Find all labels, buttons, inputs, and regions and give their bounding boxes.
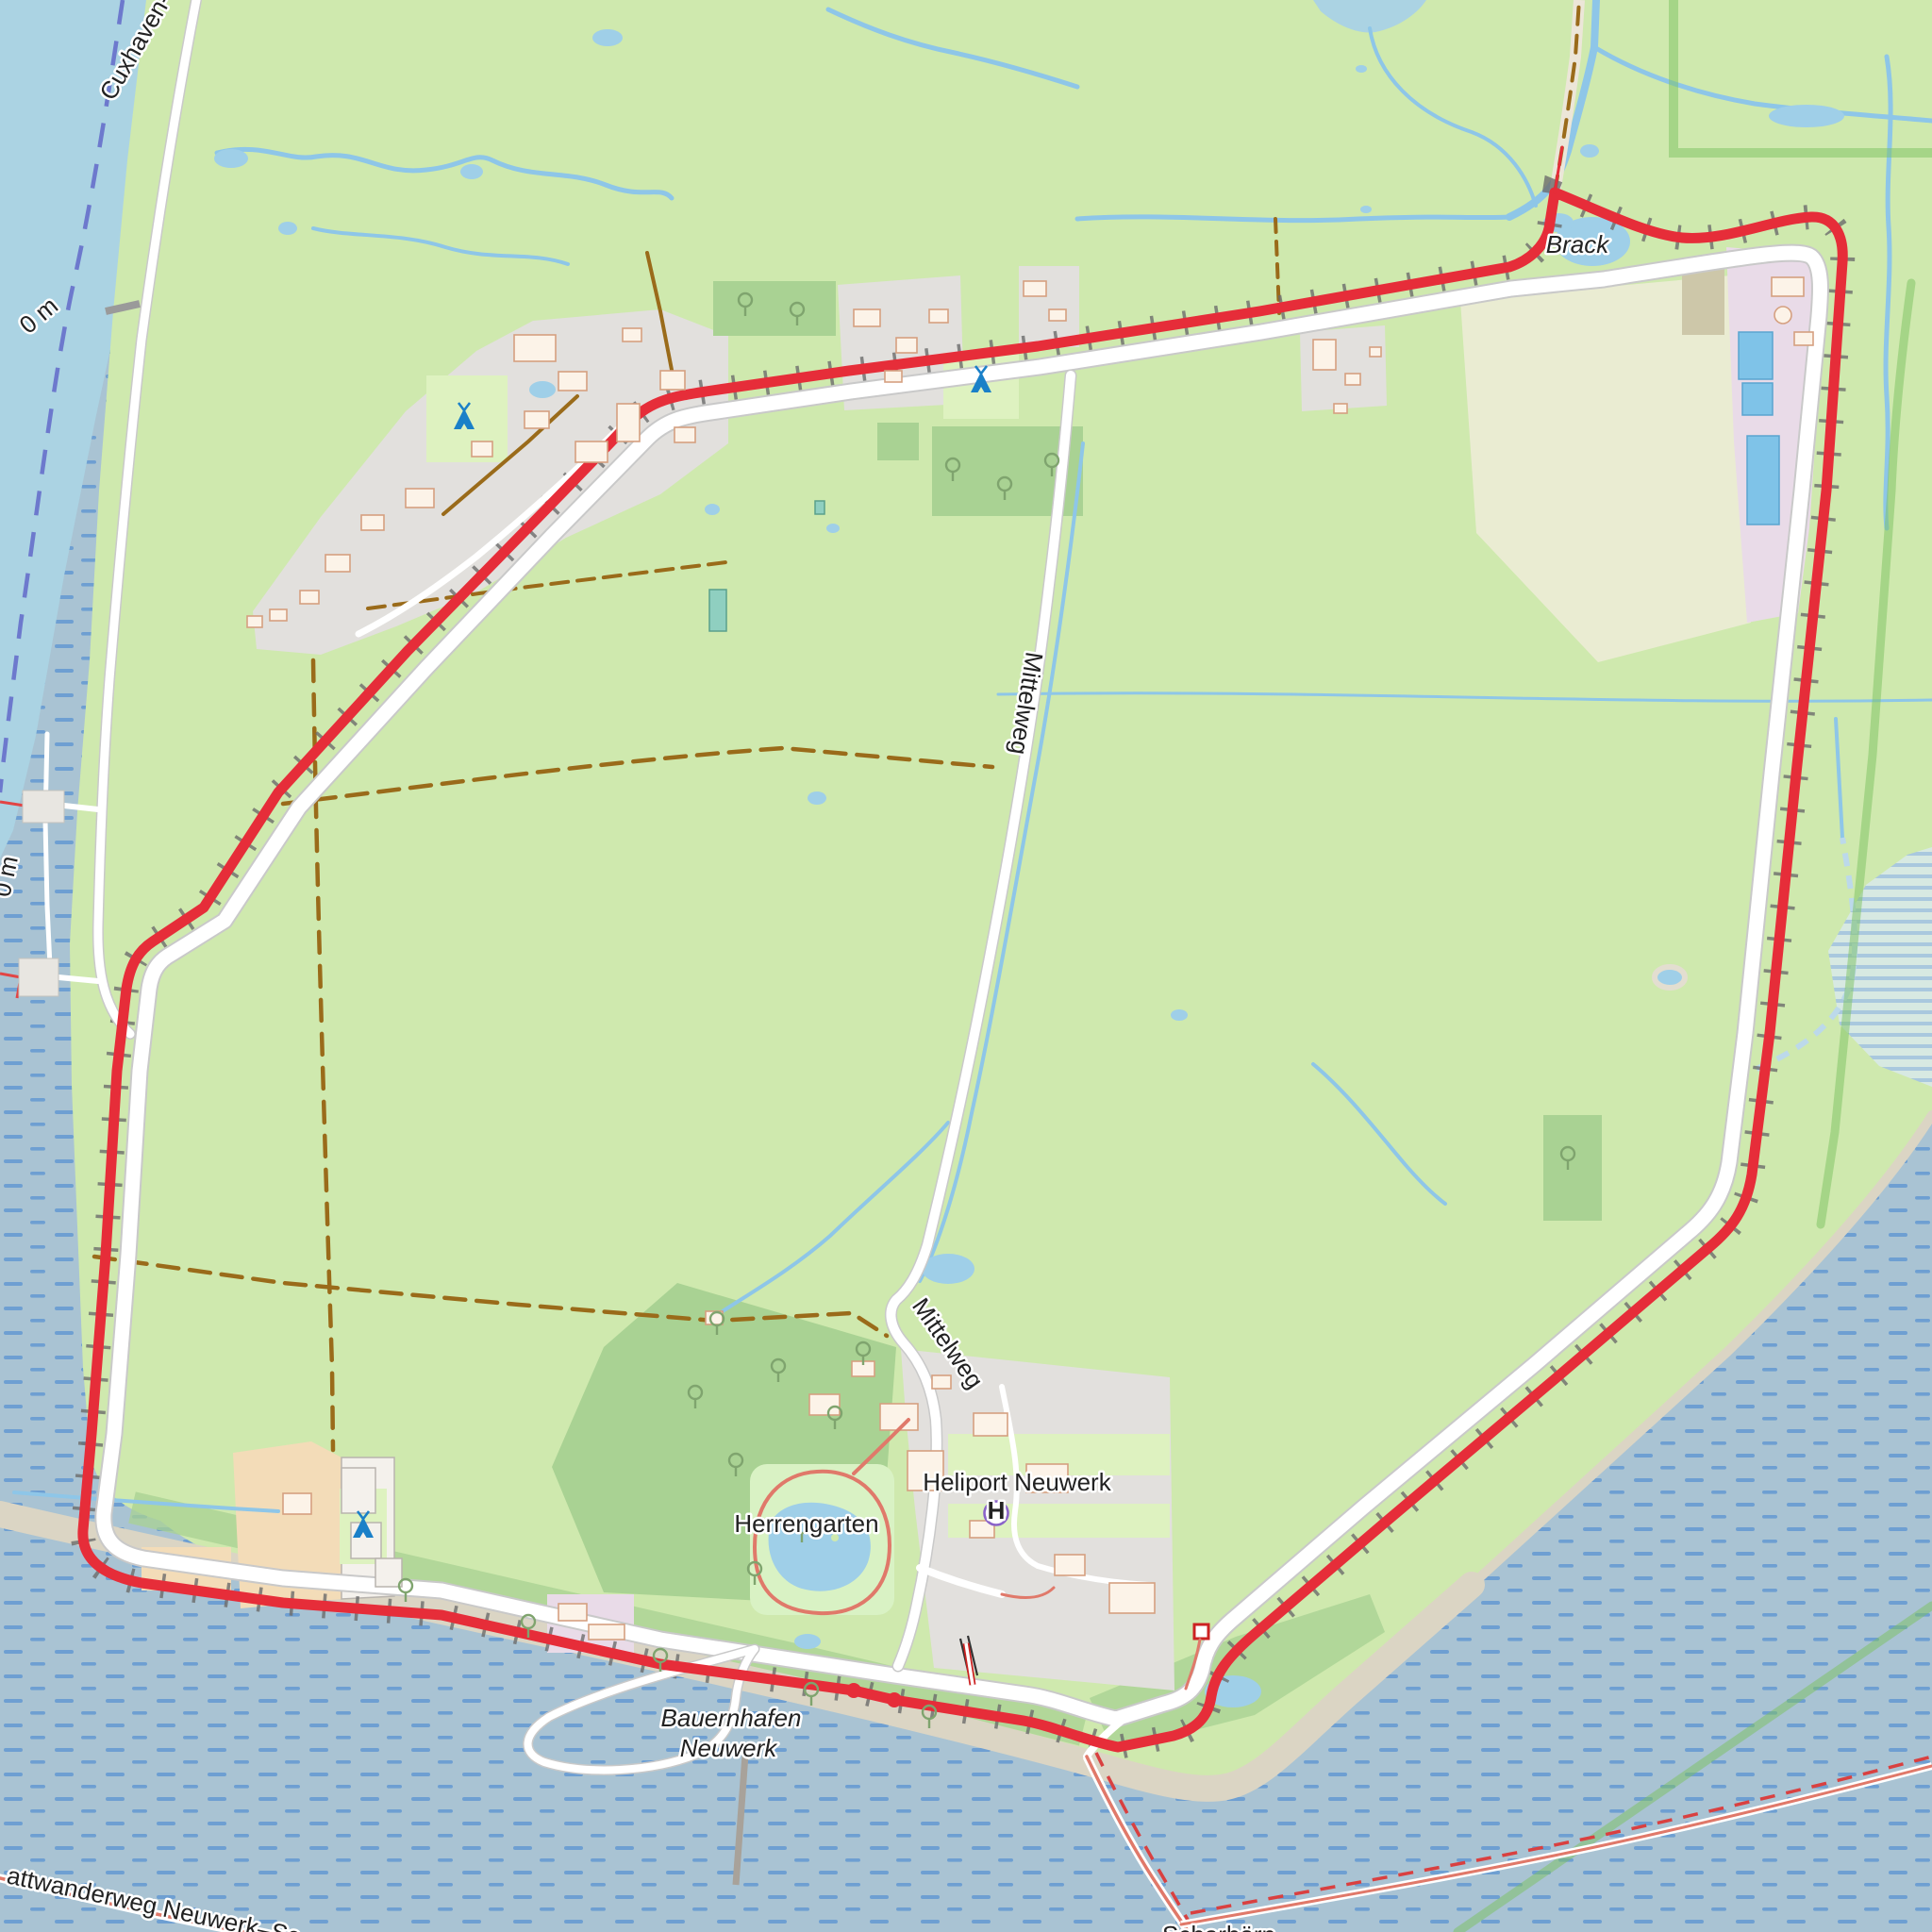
harbor-label-line2: Neuwerk [680,1734,779,1762]
beacon-icon [1194,1624,1208,1639]
map-viewport[interactable]: H Cuxhaven- 0 m 0 m Brack Mittelweg Mitt… [0,0,1932,1932]
harbor-label-line1: Bauernhafen [661,1704,802,1732]
heliport-symbol: H [988,1496,1006,1524]
route-point [887,1692,902,1707]
heliport-label: Heliport Neuwerk [923,1468,1111,1496]
route-point [846,1683,861,1698]
pond-label: Brack [1546,230,1610,258]
map-canvas[interactable]: H Cuxhaven- 0 m 0 m Brack Mittelweg Mitt… [0,0,1932,1932]
hamlet-n2 [1019,266,1079,347]
heliport-icon: H [985,1496,1008,1525]
garden-label: Herrengarten [734,1509,878,1538]
trail-label-se: Scharhörn [1162,1921,1275,1932]
